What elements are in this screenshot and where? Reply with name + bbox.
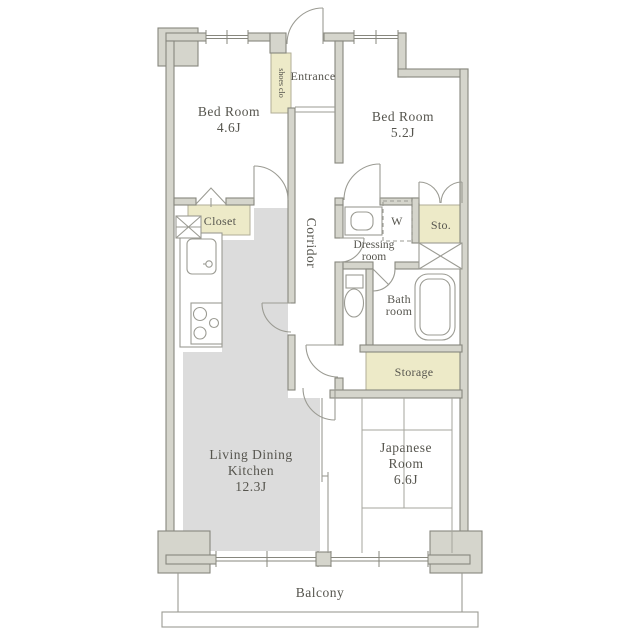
japanese-room-label-1: Japanese (380, 440, 432, 455)
washbasin (345, 207, 382, 235)
kitchen-sink (187, 239, 216, 274)
dressing-room-label-2: room (362, 251, 386, 263)
floor-plan: Bed Room 4.6J Bed Room 5.2J Entrance sho… (0, 0, 640, 640)
entrance-label: Entrance (290, 69, 335, 83)
corridor-label: Corridor (304, 218, 319, 269)
sto-label: Sto. (431, 218, 451, 232)
storage-label: Storage (395, 365, 434, 379)
shaft-box (419, 243, 462, 269)
bedroom1-size: 4.6J (217, 120, 241, 135)
washer-label: W (391, 214, 403, 228)
toilet-door (306, 345, 338, 377)
ldk-label-2: Kitchen (228, 463, 274, 478)
entrance-door (287, 8, 323, 44)
japanese-room-size: 6.6J (394, 472, 418, 487)
ldk-label-1: Living Dining (209, 447, 292, 462)
bathtub (415, 274, 455, 340)
balcony-rail (162, 612, 478, 627)
japanese-room-label-2: Room (388, 456, 423, 471)
bath-room-label-2: room (386, 304, 413, 318)
bedroom2-door (344, 164, 380, 200)
ldk-size: 12.3J (235, 479, 266, 494)
balcony-label: Balcony (296, 585, 345, 600)
bath-door (373, 269, 395, 291)
shoes-closet-label: shoes clo (277, 68, 286, 98)
sto-doors (419, 182, 462, 203)
floor-plan-page: Bed Room 4.6J Bed Room 5.2J Entrance sho… (0, 0, 640, 640)
dressing-room-label-1: Dressing (354, 239, 395, 251)
fusuma-partition (322, 398, 328, 553)
toilet (345, 275, 364, 317)
bedroom2-size: 5.2J (391, 125, 415, 140)
closet-label: Closet (204, 214, 237, 228)
closet-folding-door (196, 188, 226, 207)
pipe-space-box (176, 216, 201, 238)
bedroom1-door (254, 166, 288, 200)
bedroom2-label: Bed Room (372, 109, 434, 124)
bedroom1-label: Bed Room (198, 104, 260, 119)
